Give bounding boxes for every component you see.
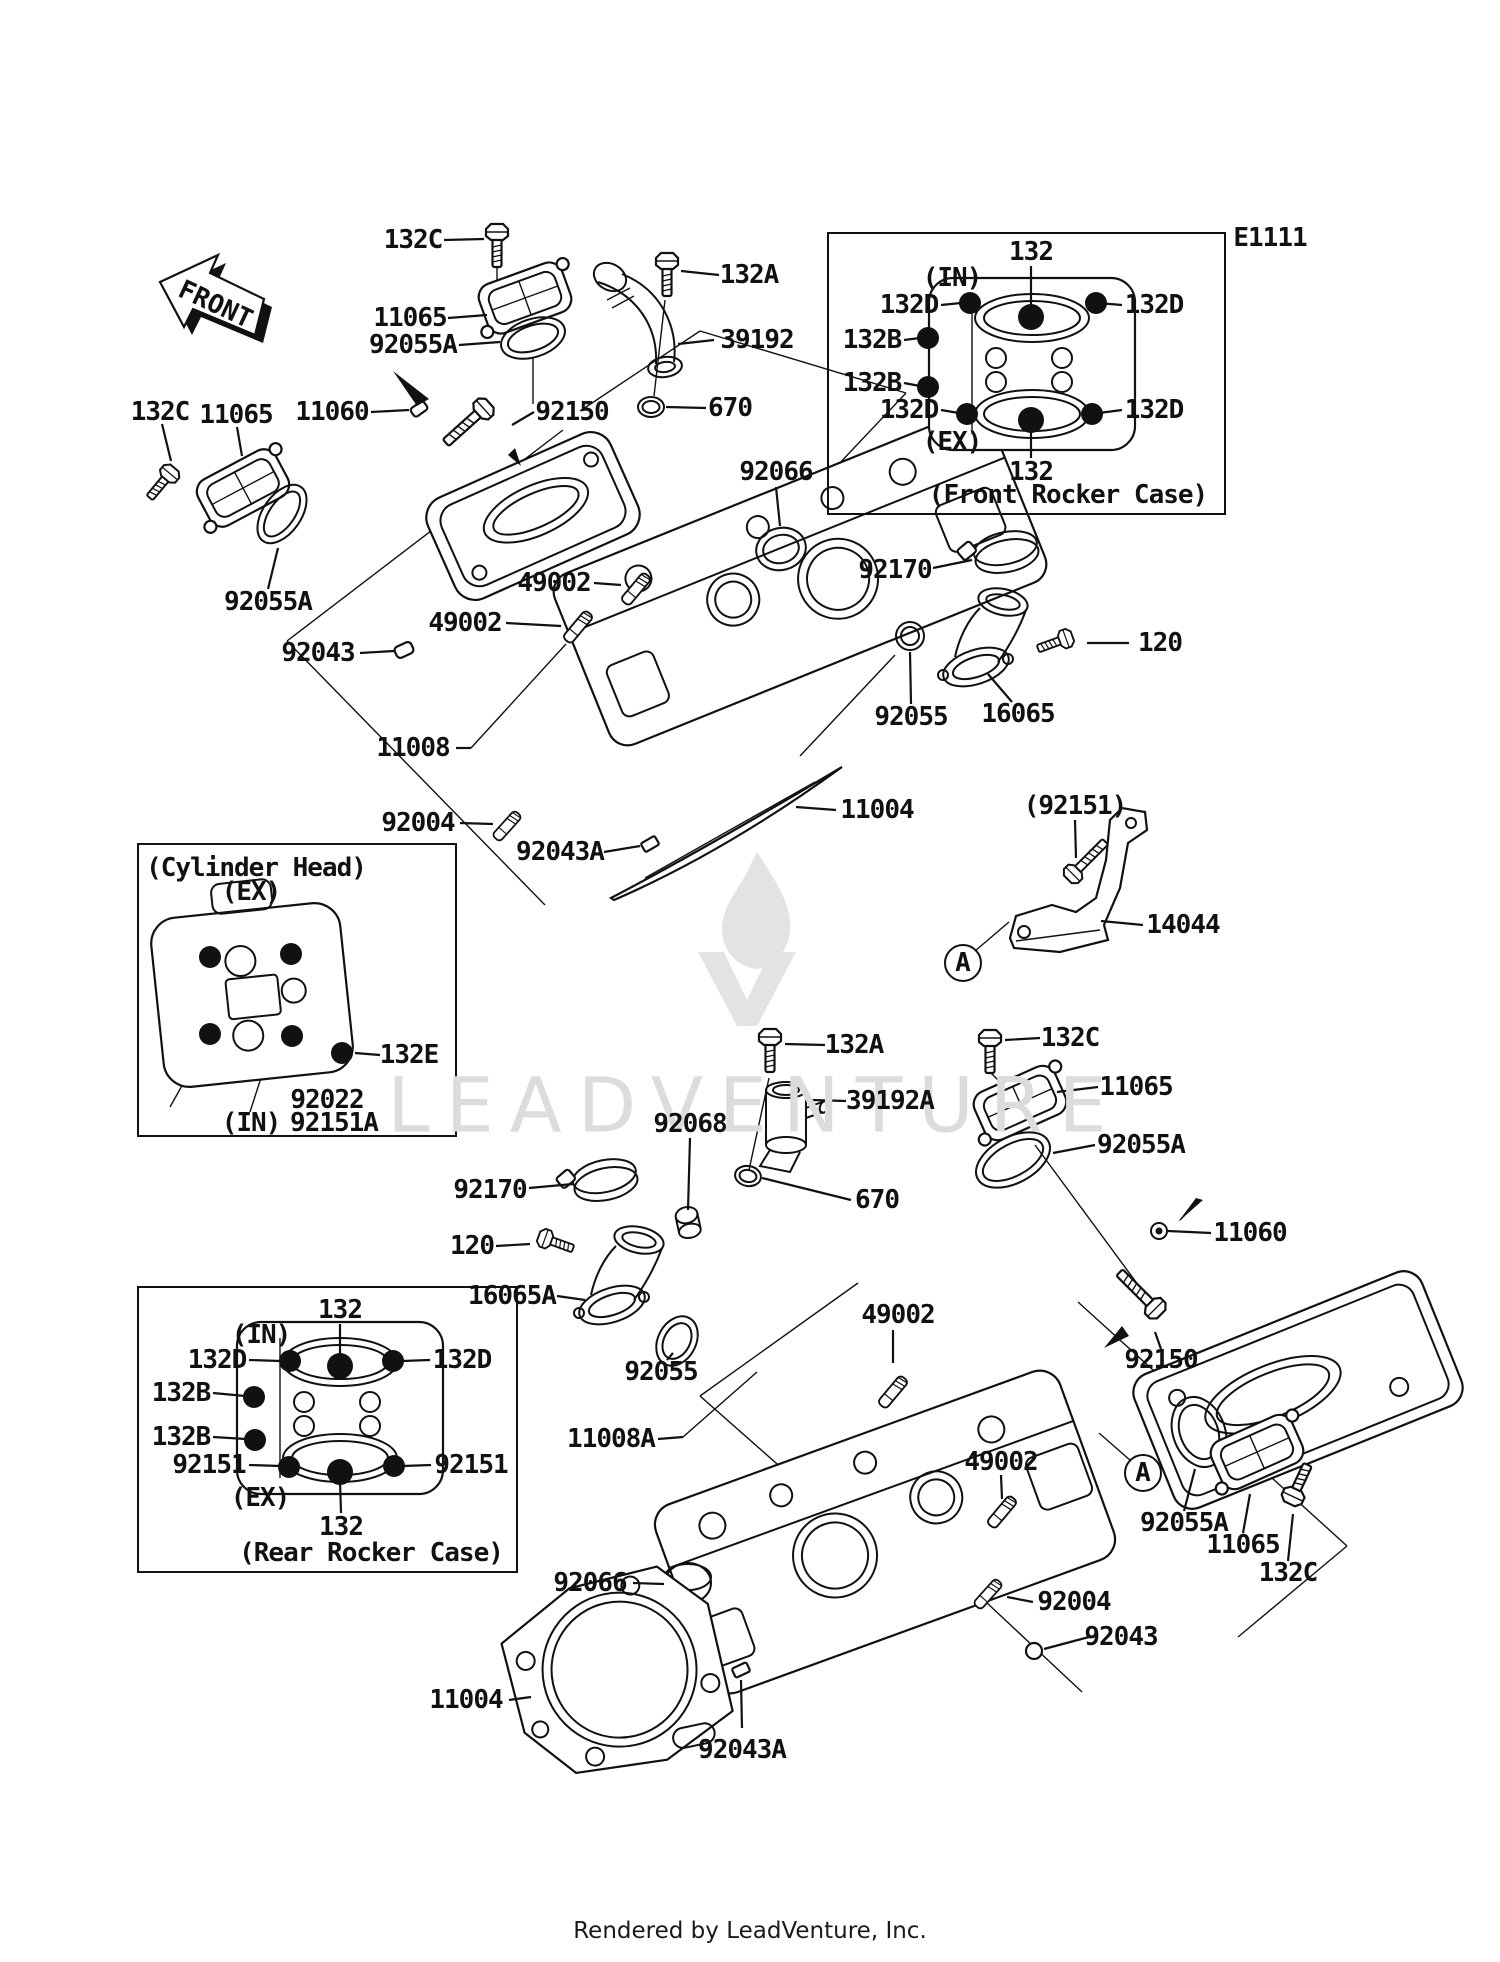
inset-caption: (Front Rocker Case) [929, 480, 1207, 510]
part-label: 670 [855, 1185, 899, 1215]
part-label: 670 [708, 393, 752, 423]
render-credit: Rendered by LeadVenture, Inc. [0, 1918, 1500, 1944]
dowel-92043a-front [641, 836, 660, 853]
part-label: 92151A [290, 1108, 378, 1138]
part-label: 92068 [653, 1109, 726, 1139]
view-callout: A [944, 944, 982, 982]
part-label: 92043 [281, 638, 354, 668]
inset-caption: (EX) [231, 1483, 290, 1513]
part-label: 132C [1259, 1558, 1318, 1588]
inset-caption: E1111 [1233, 223, 1306, 253]
plug-92043-front [393, 641, 414, 659]
part-label: 132A [720, 260, 779, 290]
part-label: 11004 [429, 1685, 502, 1715]
part-label: 11065 [199, 400, 272, 430]
part-label: 92055 [624, 1357, 697, 1387]
part-label: (92151) [1024, 791, 1127, 821]
part-label: 132 [1009, 237, 1053, 267]
part-label: 92043A [698, 1735, 786, 1765]
part-label: 92055A [1097, 1130, 1185, 1160]
inset-caption: (EX) [222, 877, 281, 907]
part-label: 11060 [1213, 1218, 1286, 1248]
part-label: 11065 [373, 303, 446, 333]
part-label: 11008A [567, 1424, 655, 1454]
part-label: 132A [825, 1030, 884, 1060]
inset-caption: (IN) [923, 263, 982, 293]
part-label: 132D [188, 1345, 247, 1375]
ball-92043-rear [1026, 1643, 1042, 1659]
cap-92068-drawing [674, 1205, 702, 1240]
part-label: 132 [318, 1295, 362, 1325]
part-label: 120 [450, 1231, 494, 1261]
view-callout: A [1124, 1454, 1162, 1492]
part-label: 11060 [295, 397, 368, 427]
part-label: 132B [843, 368, 902, 398]
part-label: 132D [1125, 290, 1184, 320]
part-label: 92043 [1084, 1622, 1157, 1652]
inset-caption: (EX) [923, 427, 982, 457]
part-label: 92055A [369, 330, 457, 360]
rear-cylinder-head-drawing [649, 1364, 1121, 1699]
part-label: 92004 [381, 808, 454, 838]
part-label: 92151 [172, 1450, 245, 1480]
part-label: 92151 [434, 1450, 507, 1480]
part-label: 92170 [453, 1175, 526, 1205]
part-label: 92055A [224, 587, 312, 617]
part-label: 92043A [516, 837, 604, 867]
oring-92055-front [896, 622, 924, 650]
part-label: 92066 [739, 457, 812, 487]
part-label: 11008 [376, 733, 449, 763]
part-label: 132C [131, 397, 190, 427]
part-label: 16065A [468, 1281, 556, 1311]
part-label: 92150 [1124, 1345, 1197, 1375]
diagram-page: LEADVENTURE [0, 0, 1500, 1962]
part-label: 92055 [874, 702, 947, 732]
part-label: 132B [843, 325, 902, 355]
part-label: 11065 [1206, 1530, 1279, 1560]
part-label: 92066 [553, 1568, 626, 1598]
part-label: 39192 [720, 325, 793, 355]
part-label: 132E [380, 1040, 439, 1070]
part-label: 49002 [964, 1447, 1037, 1477]
part-label: 92170 [858, 555, 931, 585]
part-label: 92004 [1037, 1587, 1110, 1617]
part-label: 11065 [1099, 1072, 1172, 1102]
part-label: 92150 [535, 397, 608, 427]
part-label: 132D [433, 1345, 492, 1375]
part-label: 132C [1041, 1023, 1100, 1053]
part-label: 132C [384, 225, 443, 255]
watermark-text: LEADVENTURE [387, 1061, 1122, 1150]
part-label: 14044 [1146, 910, 1219, 940]
part-label: 49002 [861, 1300, 934, 1330]
part-label: 132B [152, 1422, 211, 1452]
inset-caption: (Rear Rocker Case) [239, 1538, 503, 1568]
part-label: 120 [1138, 628, 1182, 658]
head-gasket-11004-front [611, 767, 842, 900]
part-label: 49002 [428, 608, 501, 638]
part-label: 16065 [981, 699, 1054, 729]
part-label: 132D [880, 290, 939, 320]
part-label: 132D [1125, 395, 1184, 425]
part-label: 11004 [840, 795, 913, 825]
inset-caption: (IN) [222, 1108, 281, 1138]
part-label: 39192A [846, 1086, 934, 1116]
part-label: 49002 [517, 568, 590, 598]
part-label: 132D [880, 395, 939, 425]
part-label: 132B [152, 1378, 211, 1408]
front-direction-arrow: FRONT [160, 255, 272, 343]
